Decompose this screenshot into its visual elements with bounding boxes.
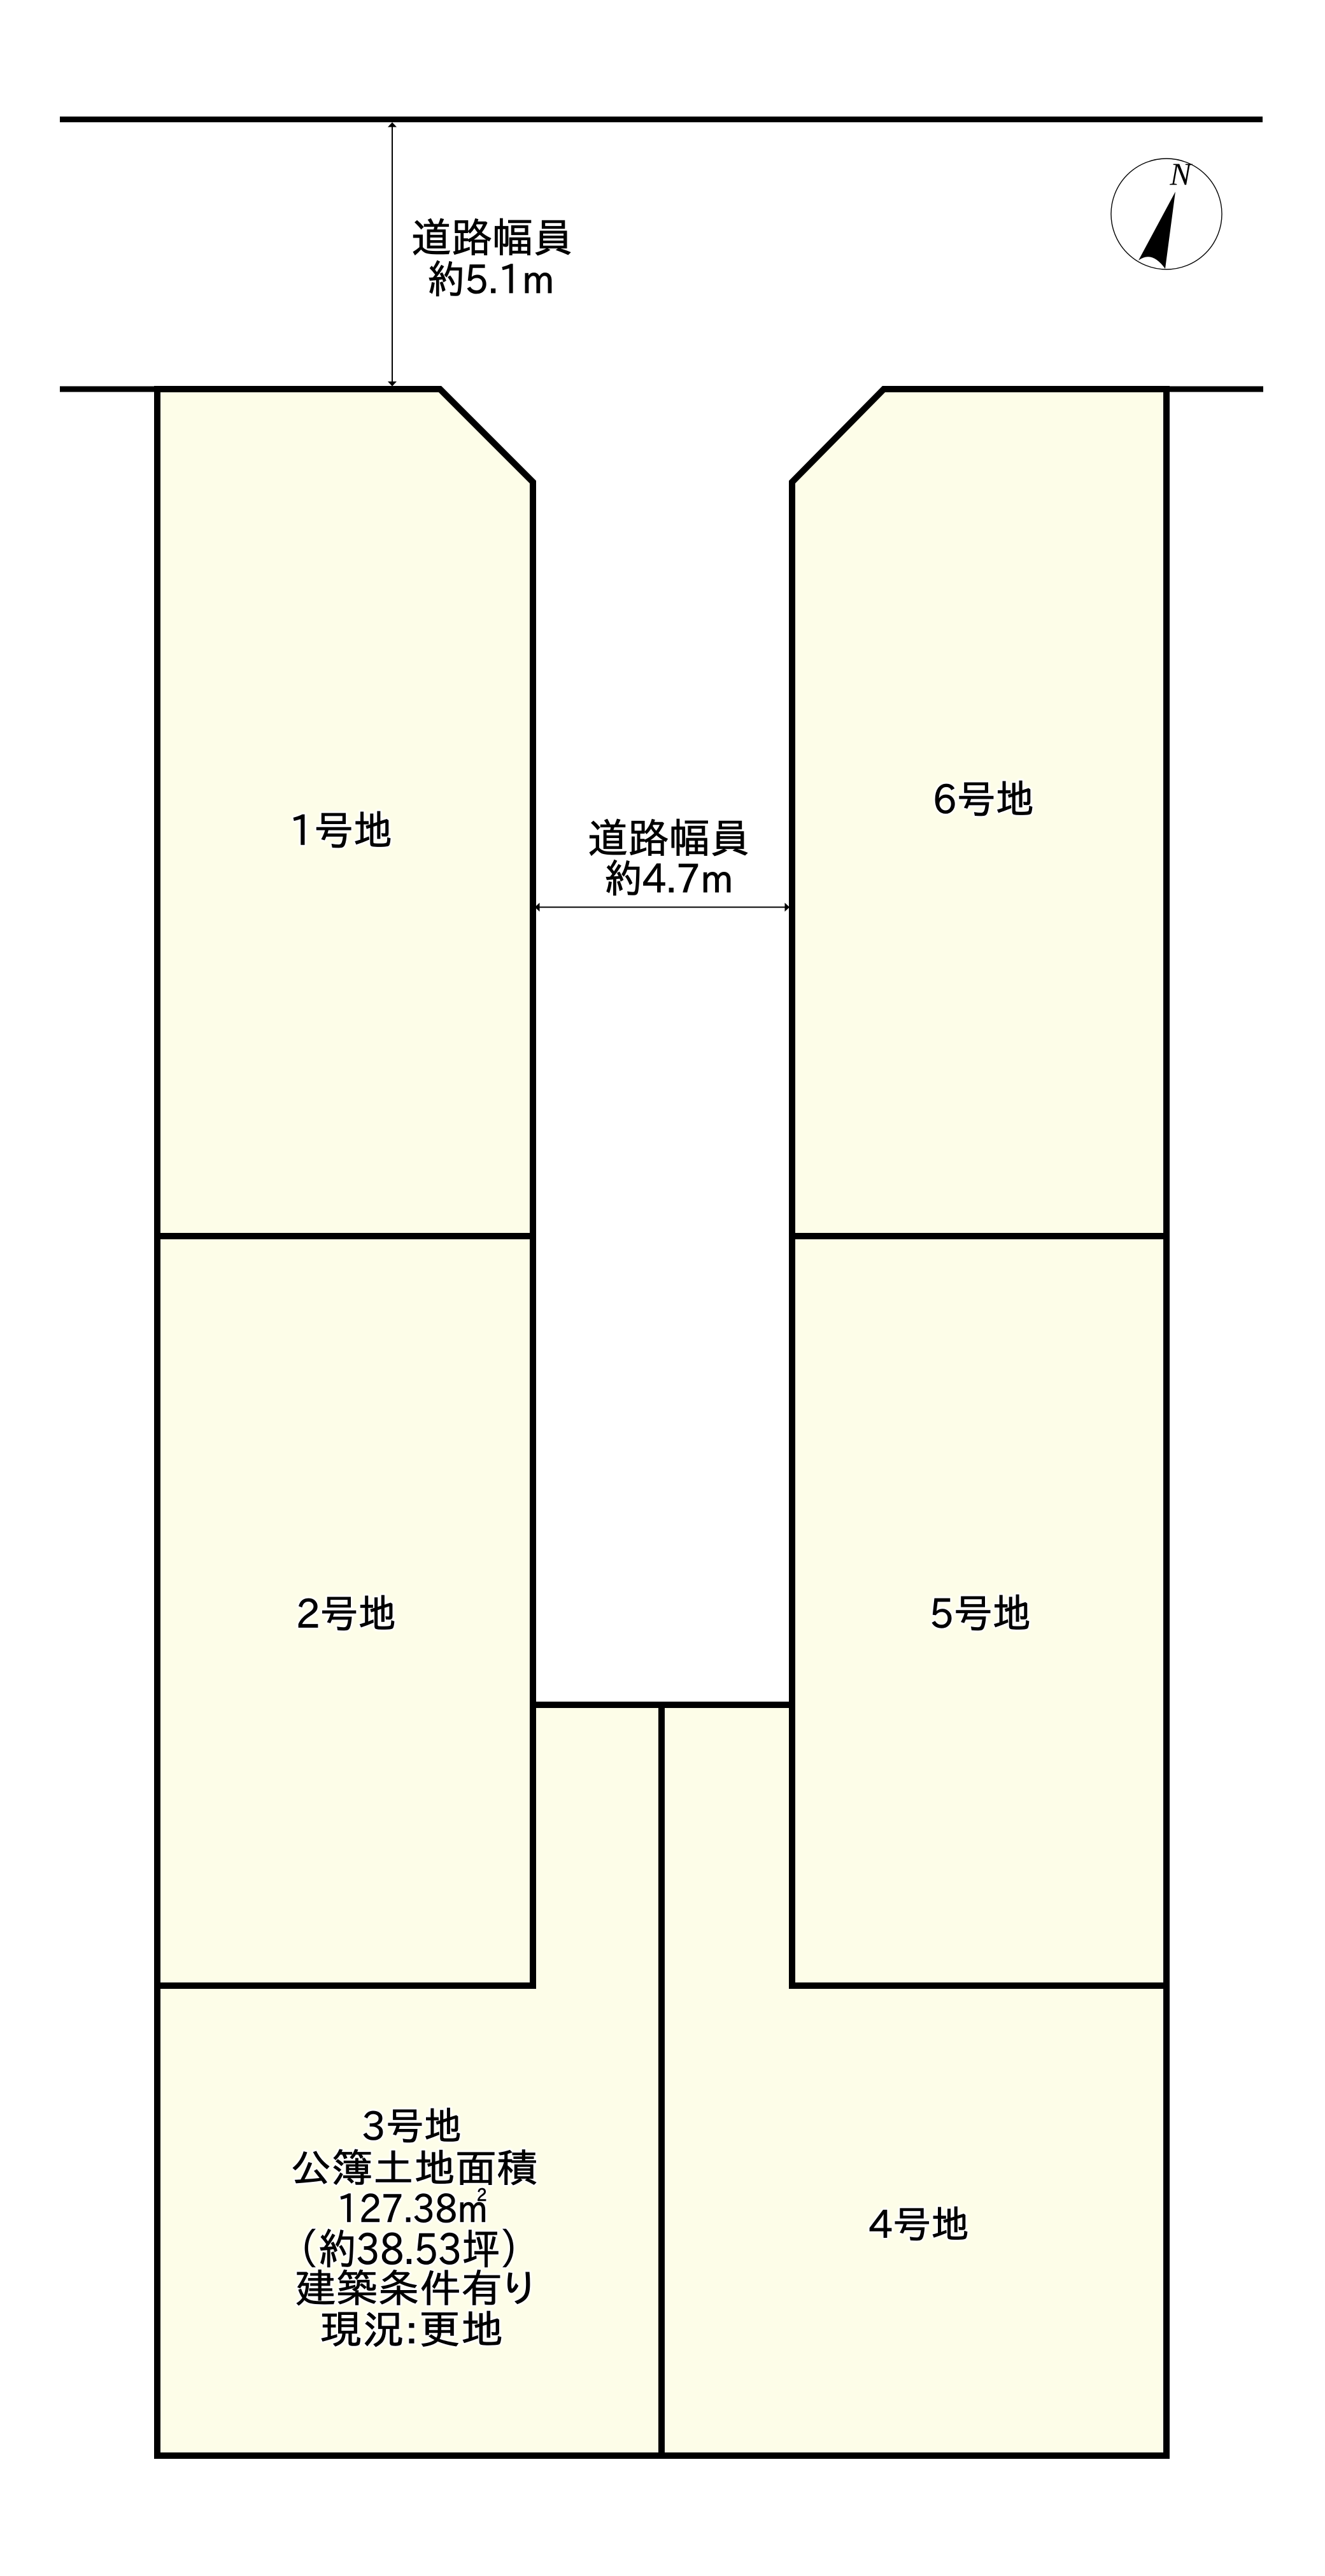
- svg-text:N: N: [1169, 156, 1193, 192]
